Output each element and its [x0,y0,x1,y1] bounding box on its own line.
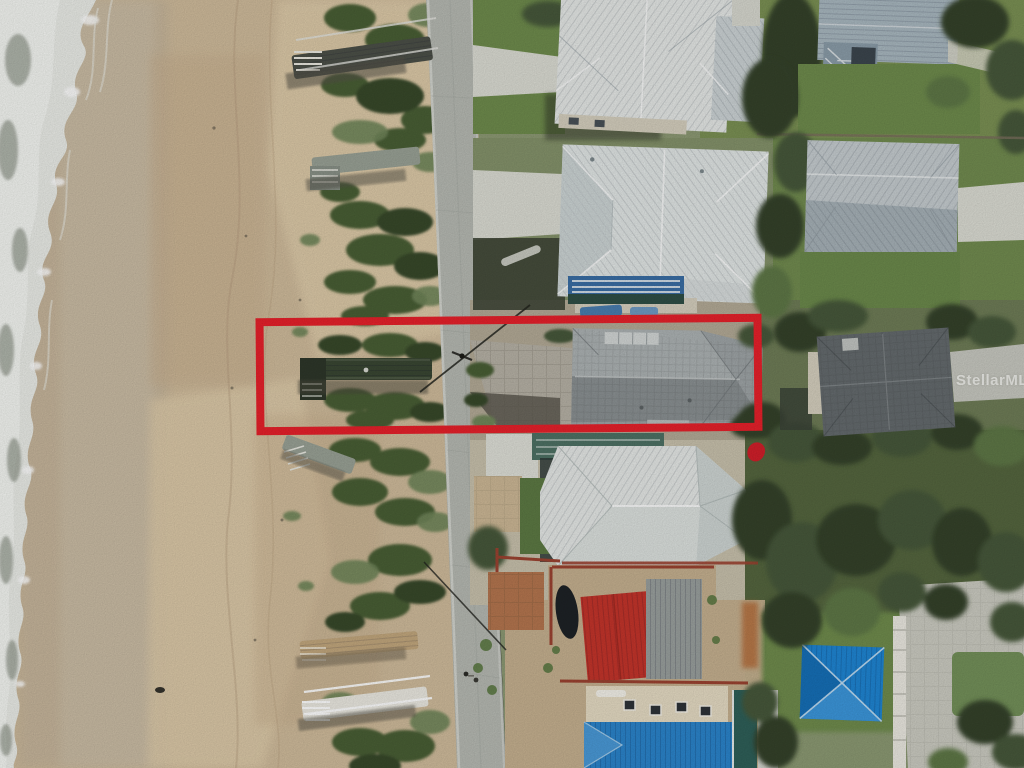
aerial-photo-canvas [0,0,1024,768]
photo-grain [0,0,1024,768]
aerial-photo: StellarMLS [0,0,1024,768]
